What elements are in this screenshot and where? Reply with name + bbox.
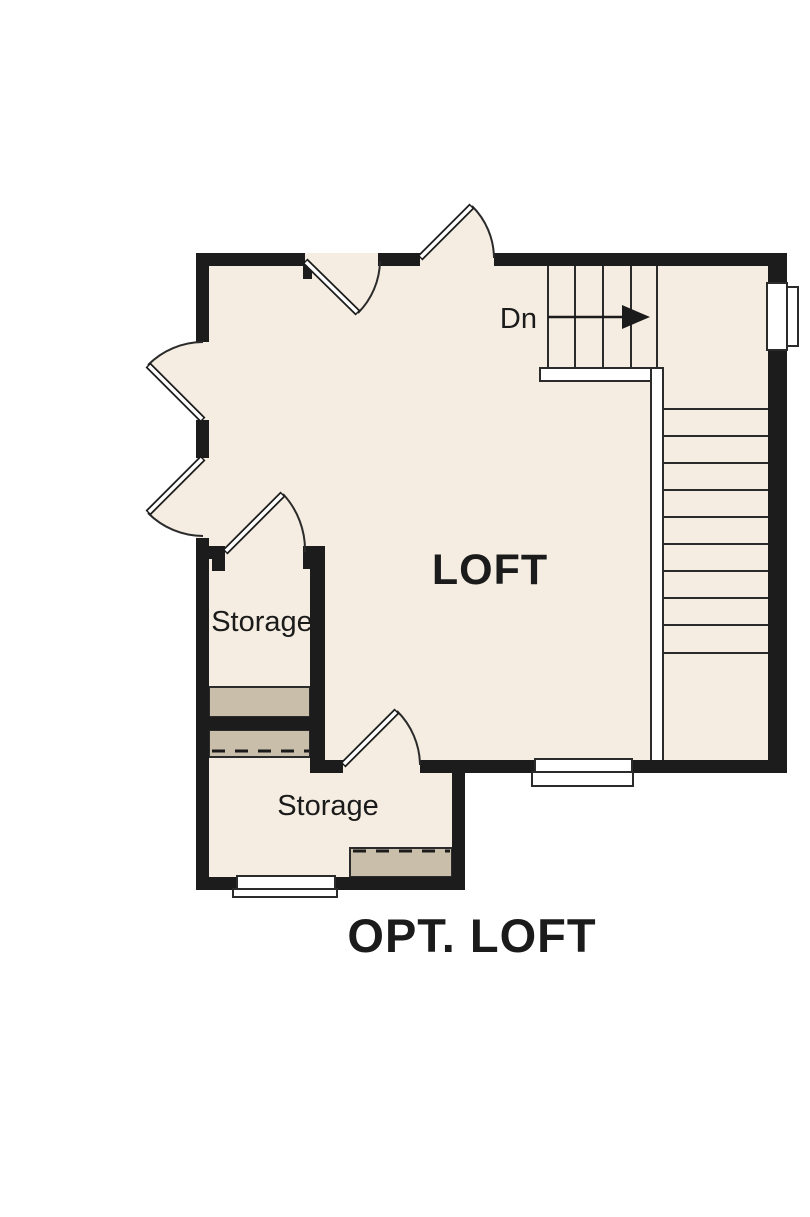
window-storage-bottom xyxy=(233,876,337,897)
stairs-down-label: Dn xyxy=(500,303,537,335)
room-label-loft: LOFT xyxy=(432,546,548,594)
plan-title: OPT. LOFT xyxy=(347,909,596,962)
window-loft-bottom xyxy=(532,759,633,786)
room-label-storage-lower: Storage xyxy=(277,790,379,822)
window-right-wall xyxy=(767,283,798,350)
floor-plan-drawing: Dn LOFT Storage Storage OPT. LOFT xyxy=(0,0,810,1217)
floorplan-page: Dn LOFT Storage Storage OPT. LOFT xyxy=(0,0,810,1217)
room-label-storage-upper: Storage xyxy=(211,606,313,638)
